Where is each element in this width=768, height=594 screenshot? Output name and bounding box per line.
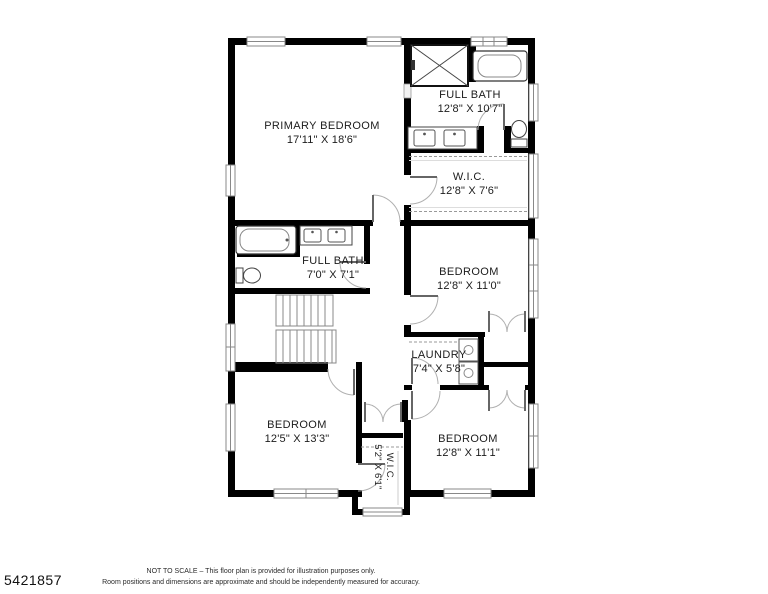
room-label-bedroom-middle: BEDROOM 12'8" X 11'0"	[410, 266, 528, 294]
room-label-full-bath-1: FULL BATH 12'8" X 10'7"	[410, 89, 530, 117]
disclaimer-line-1: NOT TO SCALE – This floor plan is provid…	[61, 567, 461, 578]
room-name: BEDROOM	[410, 266, 528, 280]
room-name: LAUNDRY	[403, 349, 475, 363]
door-swing	[328, 369, 354, 395]
window	[367, 37, 401, 46]
room-dims: 12'5" X 13'3"	[237, 433, 357, 447]
room-label-bedroom-bottom-left: BEDROOM 12'5" X 13'3"	[237, 419, 357, 447]
window	[363, 508, 402, 516]
room-name: BEDROOM	[237, 419, 357, 433]
window	[274, 489, 338, 498]
room-dims: 12'8" X 10'7"	[410, 103, 530, 117]
room-name: FULL BATH	[410, 89, 530, 103]
window	[226, 165, 235, 196]
room-dims: 17'11" X 18'6"	[242, 134, 402, 148]
room-dims: 12'8" X 11'1"	[408, 447, 528, 461]
room-label-laundry: LAUNDRY 7'4" X 5'8"	[403, 349, 475, 377]
window	[529, 404, 538, 468]
room-name: FULL BATH	[295, 255, 371, 269]
toilet-2	[236, 268, 261, 283]
room-label-full-bath-2: FULL BATH 7'0" X 7'1"	[295, 255, 371, 283]
bathtub-1	[473, 51, 527, 81]
bathtub-2	[236, 226, 296, 254]
mls-number: 5421857	[4, 572, 62, 588]
window	[529, 154, 538, 218]
room-dims: 7'0" X 7'1"	[295, 269, 371, 283]
stairs	[276, 295, 336, 363]
double-door	[489, 311, 525, 332]
room-dims: 7'4" X 5'8"	[403, 363, 475, 377]
room-label-wic-1: W.I.C. 12'8" X 7'6"	[409, 171, 529, 199]
room-name: PRIMARY BEDROOM	[242, 120, 402, 134]
room-name: W.I.C.	[409, 171, 529, 185]
vanity-sinks-2	[300, 226, 352, 245]
shower-stall	[411, 45, 468, 86]
door-swing	[410, 296, 438, 324]
window	[226, 404, 235, 451]
window	[529, 84, 538, 121]
disclaimer-text: NOT TO SCALE – This floor plan is provid…	[61, 567, 461, 588]
door-swing	[373, 195, 400, 222]
double-door	[365, 402, 401, 422]
room-label-wic-2: W.I.C. 5'2" X 6'1"	[371, 436, 395, 498]
room-dims: 12'8" X 11'0"	[410, 280, 528, 294]
room-name: BEDROOM	[408, 433, 528, 447]
window	[444, 489, 491, 498]
room-name: W.I.C.	[383, 436, 395, 498]
room-dims: 5'2" X 6'1"	[371, 436, 383, 498]
window	[471, 37, 507, 46]
double-door	[489, 390, 525, 411]
room-label-primary-bedroom: PRIMARY BEDROOM 17'11" X 18'6"	[242, 120, 402, 148]
vanity-sinks-1	[408, 127, 477, 149]
window	[529, 239, 538, 318]
disclaimer-line-2: Room positions and dimensions are approx…	[61, 578, 461, 589]
floor-plan-drawing	[0, 0, 768, 594]
window	[247, 37, 285, 46]
floor-plan-page: PRIMARY BEDROOM 17'11" X 18'6" FULL BATH…	[0, 0, 768, 594]
room-dims: 12'8" X 7'6"	[409, 185, 529, 199]
door-swing	[412, 391, 440, 419]
room-label-bedroom-bottom-right: BEDROOM 12'8" X 11'1"	[408, 433, 528, 461]
toilet-1	[511, 121, 527, 148]
window	[226, 324, 235, 371]
